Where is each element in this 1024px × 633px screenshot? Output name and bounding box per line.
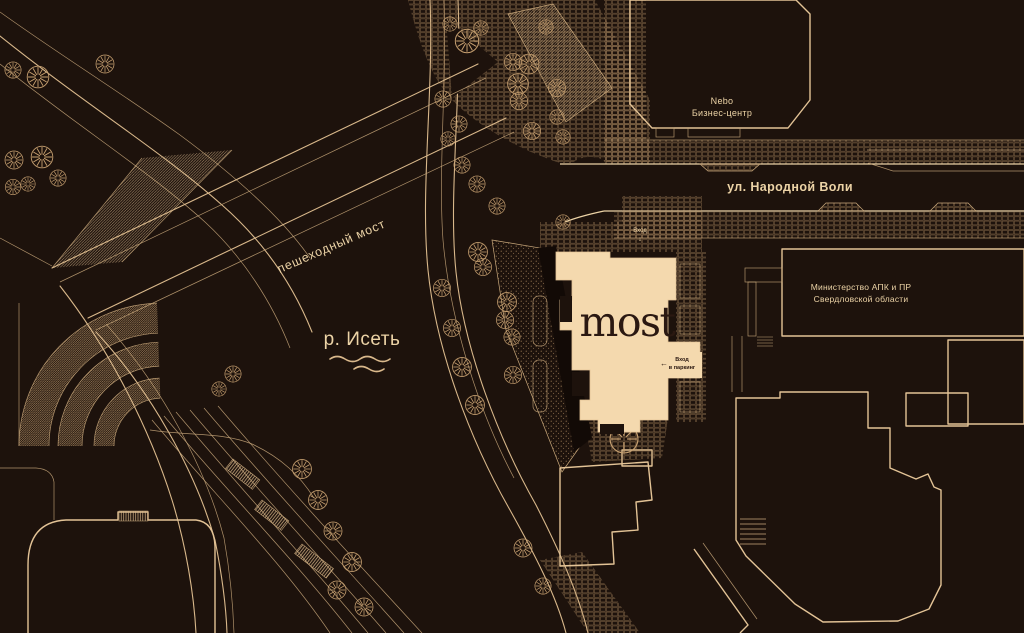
nebo-label-line2: Бизнес-центр — [692, 108, 752, 118]
southwest-building — [0, 468, 215, 633]
nebo-building: Nebo Бизнес-центр — [630, 0, 810, 137]
parking-label-line2: в паркинг — [669, 365, 696, 371]
southeast-buildings — [694, 336, 968, 633]
entrance-label: Вход — [633, 228, 647, 234]
nebo-label-line1: Nebo — [711, 96, 734, 106]
river-label: р. Исеть — [324, 329, 401, 350]
ministry-label-line2: Свердловской области — [814, 294, 909, 304]
entrance-arrow-icon: ↓ — [638, 236, 642, 243]
left-bank-paths — [0, 12, 422, 633]
south-buildings — [560, 450, 652, 566]
parking-entrance: Вход в паркинг ← — [657, 352, 702, 378]
amphitheater — [19, 303, 160, 446]
site-map: ул. Народной Воли пешеходный мост р. Исе… — [0, 0, 1024, 633]
ministry-label-line1: Министерство АПК и ПР — [811, 282, 912, 292]
parking-arrow-icon: ← — [660, 359, 668, 368]
most-logo: most — [579, 298, 676, 346]
parking-label-line1: Вход — [675, 357, 689, 363]
river-iset: р. Исеть — [324, 329, 401, 372]
water-waves-icon — [330, 357, 390, 372]
street-label: ул. Народной Воли — [727, 180, 853, 194]
ministry-building: Министерство АПК и ПР Свердловской облас… — [745, 249, 1024, 424]
map-svg: ул. Народной Воли пешеходный мост р. Исе… — [0, 0, 1024, 633]
bridge-label: пешеходный мост — [275, 217, 387, 276]
